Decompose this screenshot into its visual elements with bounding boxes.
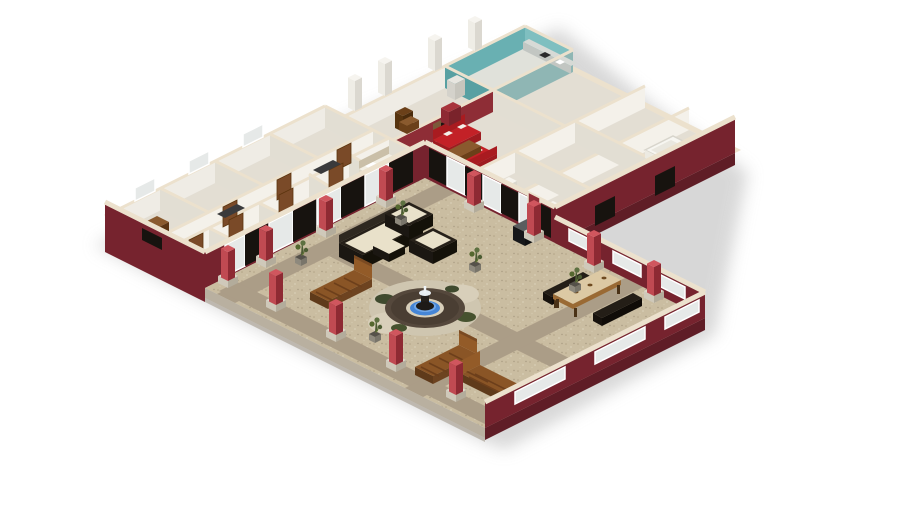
red-column	[326, 299, 346, 342]
red-column	[376, 165, 396, 208]
render-canvas	[0, 0, 900, 506]
red-column	[316, 195, 336, 238]
red-column	[218, 245, 238, 288]
red-column	[524, 200, 544, 243]
red-column	[446, 359, 466, 402]
chimney-1	[348, 74, 362, 111]
floorplan-3d-render	[0, 0, 900, 506]
chimney-2	[378, 57, 392, 96]
red-column	[584, 230, 604, 273]
red-column	[644, 260, 664, 303]
red-column	[386, 329, 406, 372]
red-column	[266, 269, 286, 312]
refrigerator	[447, 75, 465, 100]
chimney-3	[428, 34, 442, 71]
red-column	[256, 225, 276, 268]
chimney-4	[468, 16, 482, 51]
red-column	[464, 170, 484, 213]
